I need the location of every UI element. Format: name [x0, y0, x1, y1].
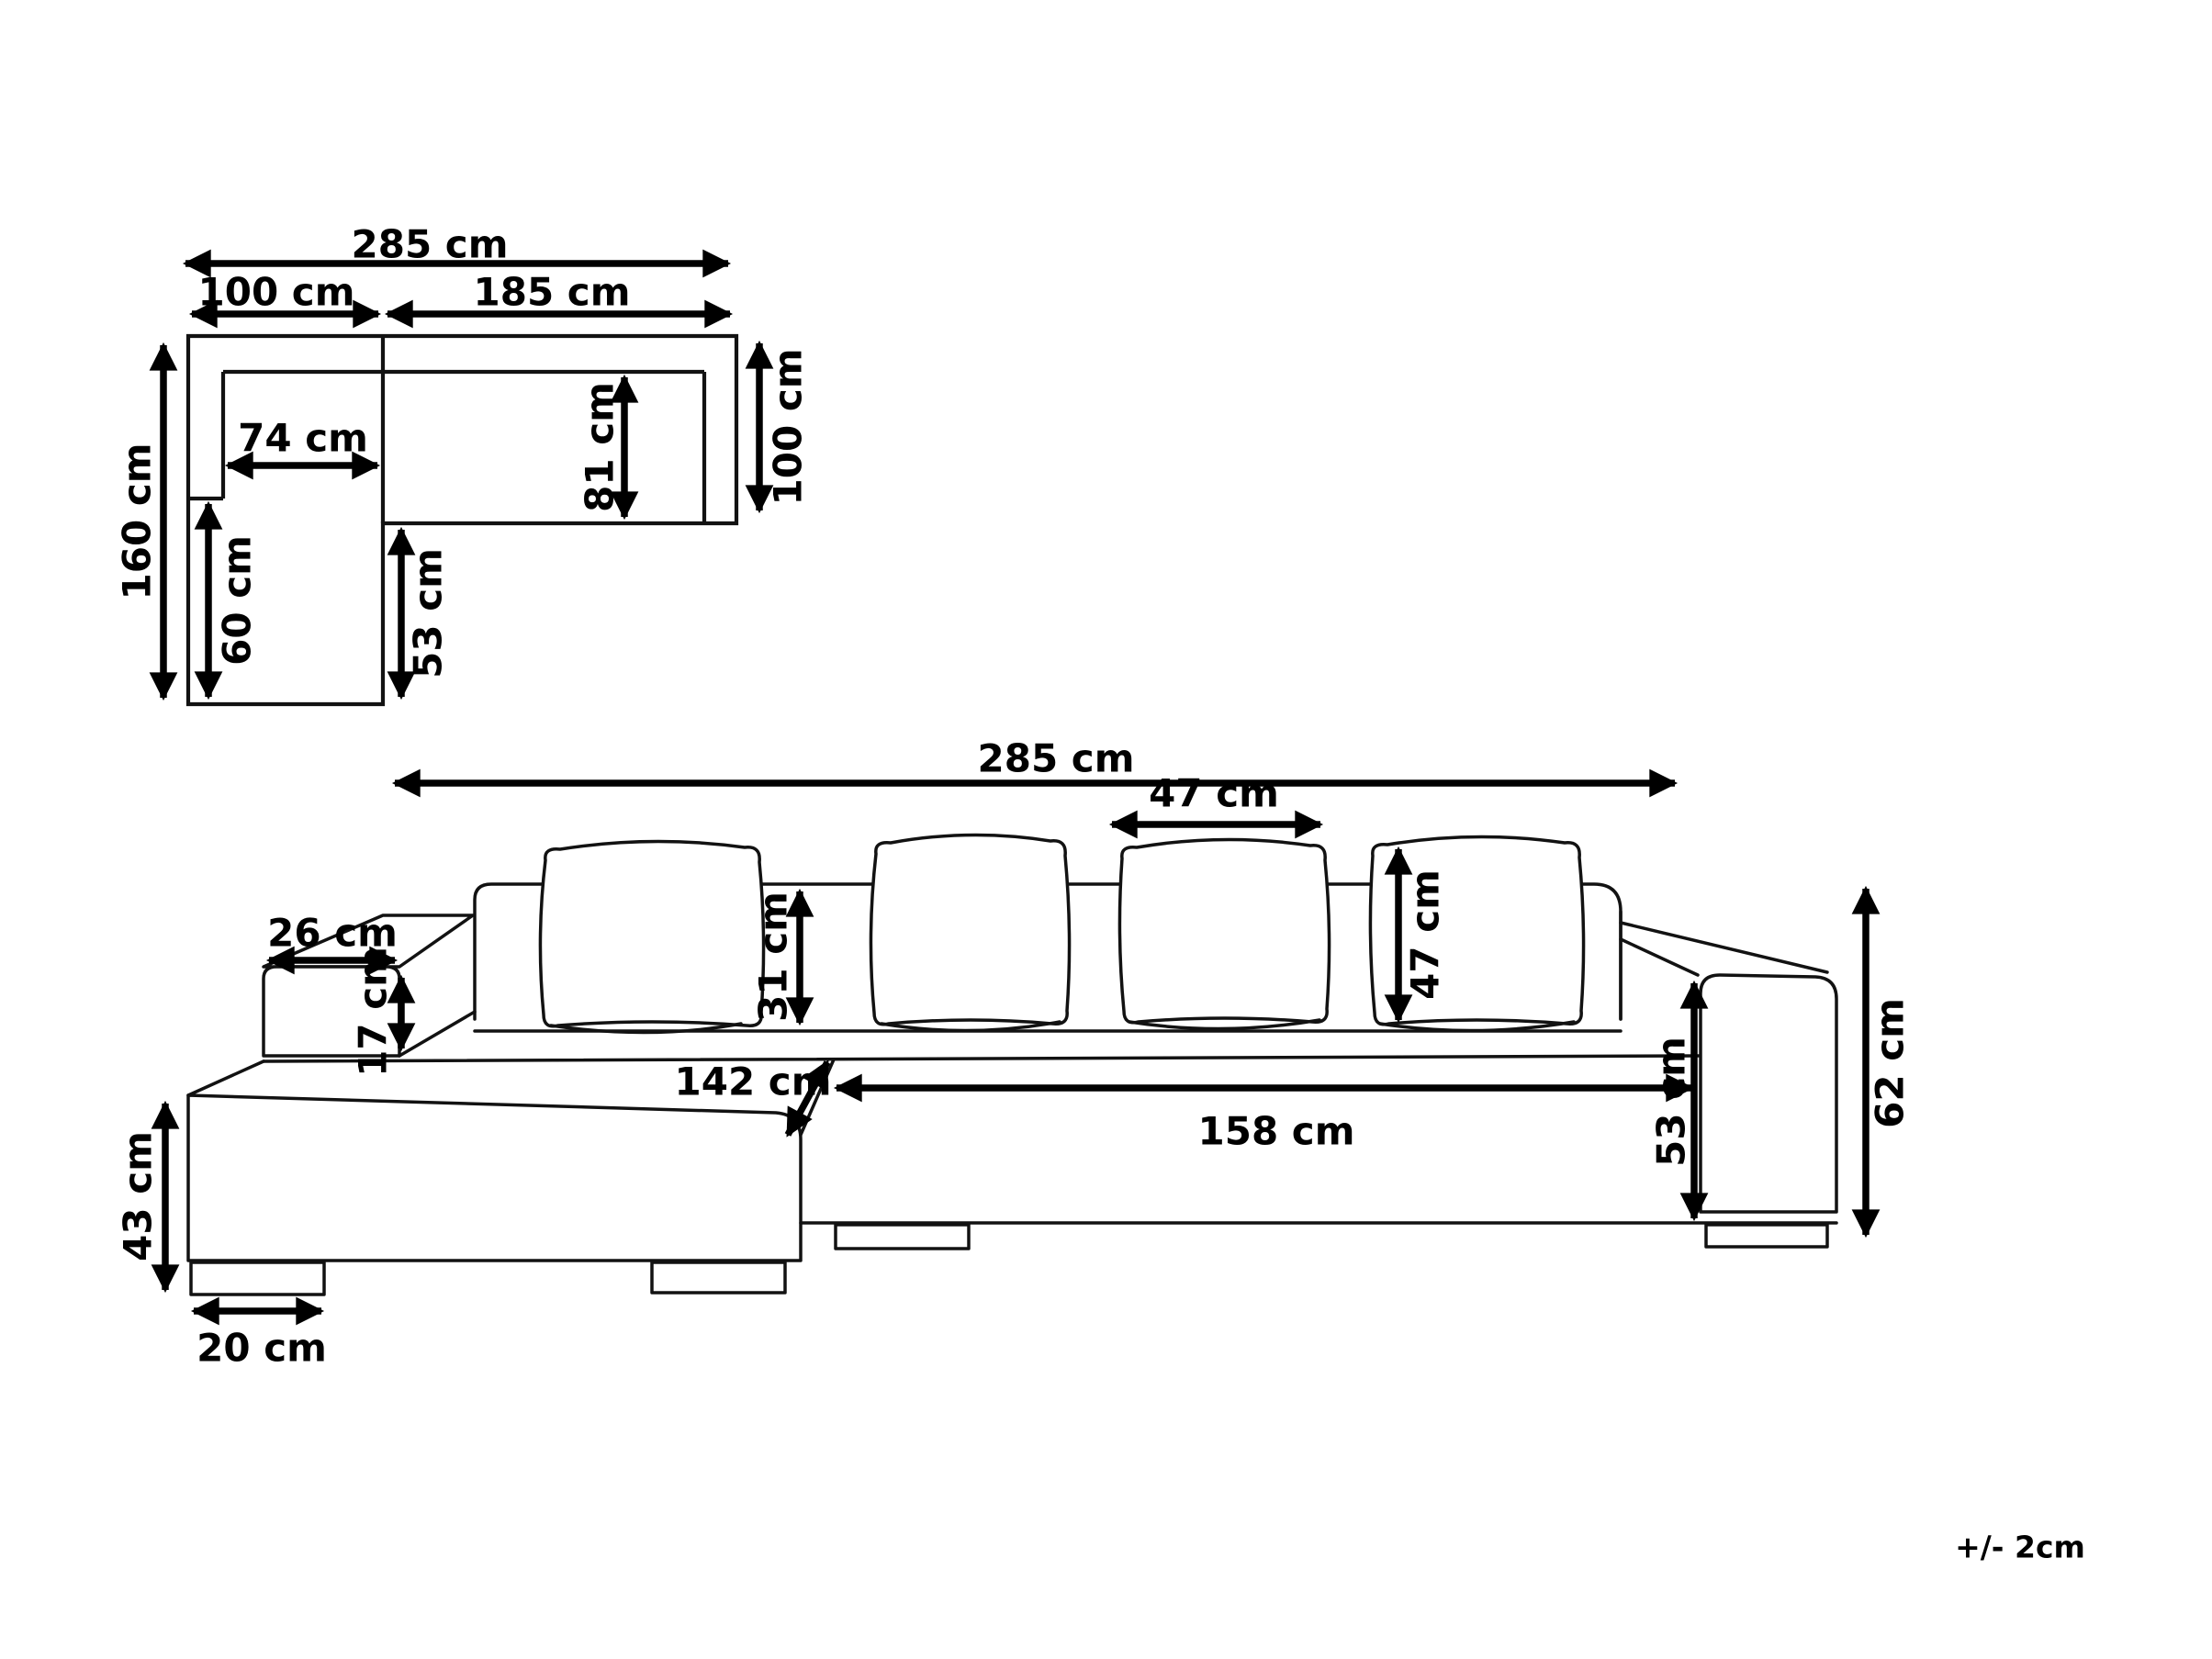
dim-plan-seat-width: 74 cm — [238, 416, 368, 461]
chaise-front — [188, 1095, 801, 1261]
seat-cushion-3 — [1119, 839, 1329, 1022]
dim-chaise-front-height: 43 cm — [116, 1131, 161, 1261]
left-armrest-side-edge — [399, 1012, 475, 1056]
dim-backrest-above-seat: 31 cm — [751, 891, 796, 1022]
dim-plan-chaise-front-depth: 60 cm — [215, 535, 260, 666]
dim-inner-seat-width: 158 cm — [1198, 1109, 1355, 1154]
plan-outer-outline — [188, 336, 736, 704]
right-armrest-front — [1701, 975, 1836, 1212]
foot-chaise-left — [191, 1262, 324, 1295]
dim-cushion-height: 47 cm — [1403, 869, 1448, 1000]
dim-plan-right-depth: 100 cm — [766, 349, 811, 506]
seat-cushion-2 — [870, 835, 1069, 1024]
seat-cushion-1 — [540, 841, 763, 1026]
dim-front-total-width: 285 cm — [978, 736, 1135, 781]
dim-plan-chaise-width: 100 cm — [198, 270, 355, 315]
seat-front-edge — [264, 1056, 1701, 1061]
right-armrest-top-back-edge — [1621, 923, 1827, 972]
dim-cushion-width: 47 cm — [1149, 771, 1279, 816]
dim-chaise-diagonal: 142 cm — [675, 1059, 832, 1104]
chaise-seat-left-edge — [188, 1061, 264, 1095]
tolerance-note: +/- 2cm — [1955, 1530, 2085, 1565]
dim-armrest-height: 62 cm — [1868, 998, 1913, 1128]
dim-plan-right-width: 185 cm — [474, 270, 631, 315]
front-view: 285 cm 47 cm 31 cm 47 cm 142 cm 158 cm 5… — [116, 736, 1913, 1371]
foot-center — [836, 1225, 969, 1249]
diagram-canvas: 285 cm 100 cm 185 cm 160 cm 100 cm 74 cm… — [0, 0, 2212, 1659]
dim-plan-chaise-overhang: 53 cm — [406, 548, 451, 678]
dim-plan-total-width: 285 cm — [352, 222, 509, 267]
dim-foot-width: 20 cm — [196, 1326, 327, 1371]
dim-seat-height: 53 cm — [1649, 1037, 1694, 1167]
dim-plan-chaise-depth: 160 cm — [115, 443, 160, 600]
foot-chaise-right — [652, 1262, 785, 1293]
sofa-dimension-diagram: 285 cm 100 cm 185 cm 160 cm 100 cm 74 cm… — [0, 0, 2212, 1659]
dim-armrest-front-height: 17 cm — [351, 947, 396, 1077]
plan-view: 285 cm 100 cm 185 cm 160 cm 100 cm 74 cm… — [115, 222, 811, 705]
foot-right — [1706, 1225, 1827, 1247]
dim-plan-seat-depth: 81 cm — [578, 382, 623, 512]
right-armrest-top-front-edge — [1621, 939, 1698, 975]
